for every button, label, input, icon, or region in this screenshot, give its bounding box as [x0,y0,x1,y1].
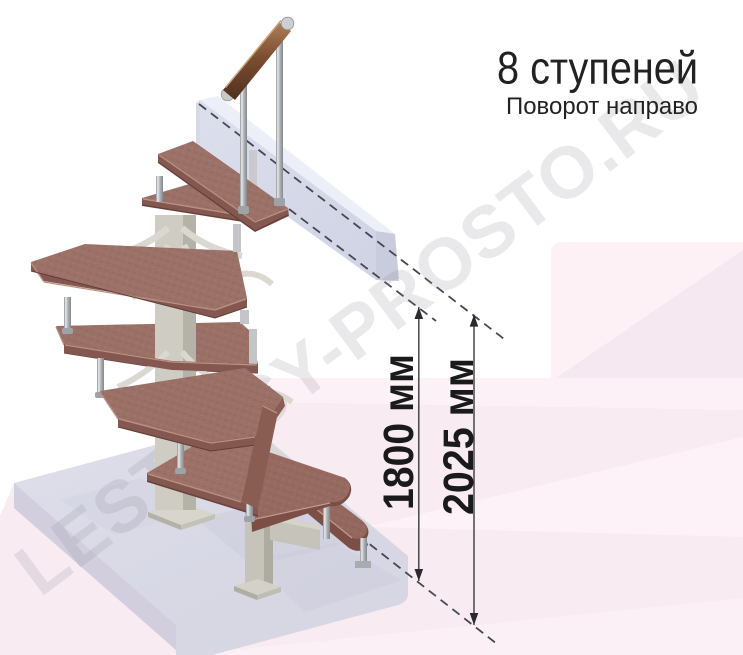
svg-text:1800 мм: 1800 мм [375,354,423,510]
svg-text:2025 мм: 2025 мм [435,358,483,515]
svg-text:Поворот направо: Поворот направо [506,93,698,120]
svg-text:8 ступеней: 8 ступеней [497,43,698,94]
